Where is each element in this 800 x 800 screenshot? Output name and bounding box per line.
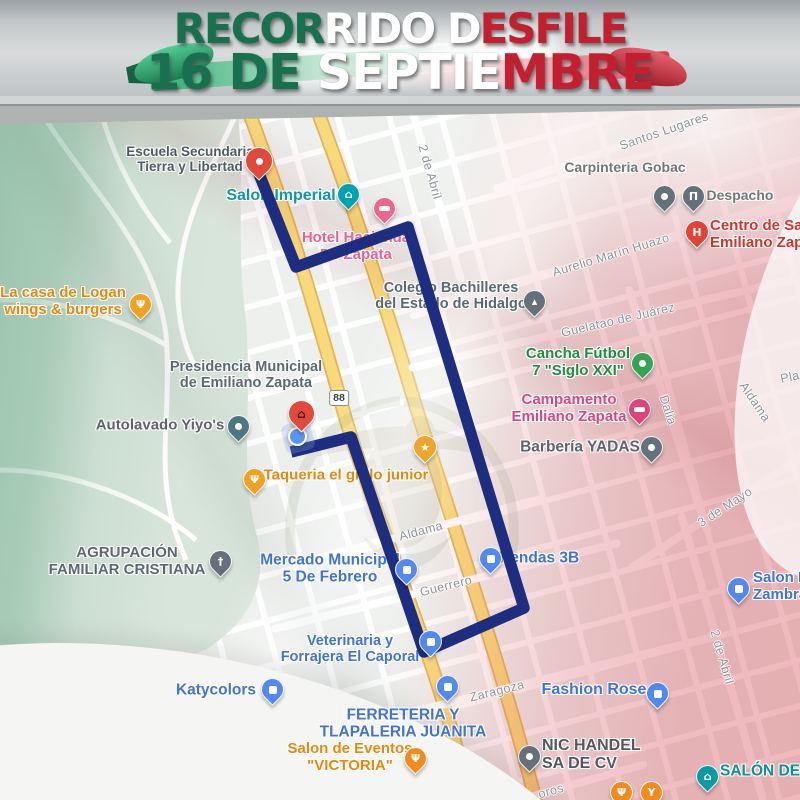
despacho-pin[interactable]: Π (677, 180, 710, 213)
bag-icon (647, 683, 668, 704)
cocktail-icon: Y (641, 782, 662, 800)
building-dark-icon: ⌂ (289, 401, 314, 426)
mercado-pin[interactable] (390, 553, 423, 586)
cancha-futbol-pin[interactable] (626, 347, 659, 380)
iglesia-pin[interactable]: † (204, 545, 237, 578)
fashion-rose-pin[interactable] (641, 677, 674, 710)
barberia-pin[interactable] (635, 431, 668, 464)
star-pin[interactable]: ★ (408, 430, 442, 464)
dot-icon (246, 148, 272, 174)
restaurant-pin-south-2[interactable]: Ψ (605, 776, 638, 800)
tiendas-3b-pin[interactable] (474, 542, 507, 575)
cart-icon (728, 578, 749, 599)
bed-icon (374, 198, 395, 219)
veterinaria-pin[interactable] (414, 625, 447, 658)
parade-route-poster: Santos Lugares2 de AbrilAurelio Marín Hu… (0, 0, 800, 800)
taqueria-pin[interactable]: Ψ (238, 463, 271, 496)
cocktail-pin[interactable]: Y (635, 776, 668, 800)
salon-imperial-pin[interactable]: ⌂ (332, 178, 365, 211)
bed-icon (629, 399, 650, 420)
title-segment: SEPTIE (317, 44, 501, 101)
dot-icon (228, 416, 249, 437)
bag-icon (420, 631, 441, 652)
title-segment: MBRE (500, 44, 653, 101)
building-icon: ⌂ (338, 184, 359, 205)
salon-del-pin[interactable]: ⌂ (691, 760, 724, 793)
building-icon: ⌂ (697, 766, 718, 787)
restaurant-icon: Ψ (405, 748, 426, 769)
escuela-secundaria-pin[interactable] (239, 141, 279, 181)
katycolors-pin[interactable] (256, 673, 289, 706)
header-divider (0, 104, 800, 106)
la-casa-de-logan-pin[interactable]: Ψ (124, 288, 157, 321)
nic-handel-pin[interactable] (513, 740, 546, 773)
hospital-icon: H (686, 221, 708, 243)
cart-icon (396, 559, 417, 580)
restaurant-icon: Ψ (611, 782, 632, 800)
cross-icon: † (210, 551, 231, 572)
carpinteria-pin[interactable] (648, 180, 681, 213)
restaurant-icon: Ψ (130, 294, 151, 315)
restaurant-pin-south-1[interactable]: Ψ (399, 742, 432, 775)
hotel-hacienda-pin[interactable] (368, 192, 401, 225)
title-banner: RECORRIDO DESFILE 16 DE SEPTIEMBRE (0, 0, 800, 96)
bag-icon (437, 676, 458, 697)
bag-icon (262, 679, 283, 700)
campamento-pin[interactable] (623, 393, 656, 426)
centro-salud-pin[interactable]: H (680, 215, 714, 249)
school-icon: ▴ (524, 291, 545, 312)
title-segment: 16 DE (146, 44, 316, 101)
title-line-2: 16 DE SEPTIEMBRE (0, 44, 800, 101)
highway-88-shield: 88 (329, 390, 349, 406)
star-icon: ★ (414, 436, 436, 458)
autolavado-pin[interactable] (222, 410, 255, 443)
dot-icon (519, 746, 540, 767)
zaragoza-bag-pin[interactable] (431, 670, 464, 703)
cart-icon (480, 548, 501, 569)
colegio-pin[interactable]: ▴ (518, 285, 551, 318)
restaurant-icon: Ψ (244, 469, 265, 490)
dot-icon (654, 186, 675, 207)
dot-icon (632, 353, 653, 374)
museum-icon: Π (683, 186, 704, 207)
dot-icon (641, 437, 662, 458)
salon-zambrano-pin[interactable] (722, 572, 755, 605)
